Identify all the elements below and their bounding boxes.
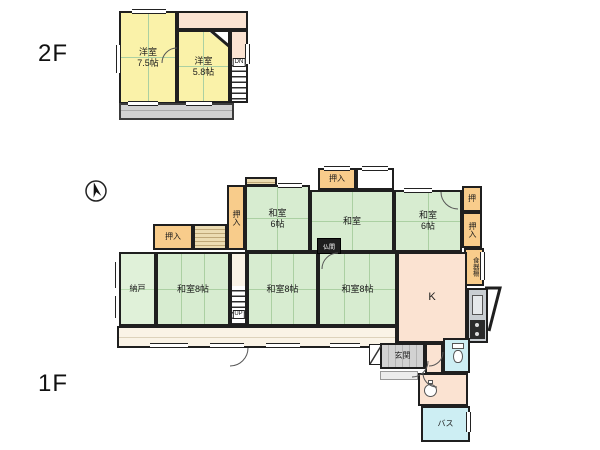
- kitchen-counter: [467, 288, 488, 343]
- f1-closet-right-vertical: 押入: [462, 212, 482, 248]
- window-mark: [266, 343, 300, 348]
- window-mark: [466, 412, 471, 432]
- f1-room-washitsu-8-c: 和室8帖: [318, 252, 397, 326]
- kitchen-stove: [470, 320, 485, 339]
- window-mark: [128, 101, 158, 106]
- f1-room-kitchen: K: [397, 252, 467, 343]
- room-name: 洋室: [137, 47, 159, 58]
- room-size: 6帖: [419, 221, 437, 232]
- kitchen-sink: [472, 295, 483, 315]
- shoe-cabinet: [369, 344, 381, 365]
- f1-room-washitsu-8-b: 和室8帖: [247, 252, 318, 326]
- room-name: 和室8帖: [266, 284, 298, 295]
- closet-label: 押入: [468, 222, 476, 238]
- room-size: 6帖: [268, 219, 286, 230]
- f1-closet-top-mid: 押入: [318, 168, 356, 190]
- window-mark: [210, 343, 244, 348]
- cabinet-label: 食器棚: [471, 257, 478, 277]
- window-mark: [362, 166, 388, 171]
- f1-shelf-hatch: [193, 224, 227, 250]
- window-mark: [324, 166, 350, 171]
- window-mark: [404, 188, 432, 193]
- closet-label: 押入: [232, 210, 240, 226]
- floor-plan-canvas: 2F 1F 洋室7.5帖 洋室5.8帖 DN 押入 押入 和室6帖 押入 和室: [0, 0, 600, 450]
- f1-toilet-room: [443, 338, 470, 373]
- f2-stairs-down: DN: [230, 30, 248, 103]
- room-size: 5.8帖: [193, 67, 215, 78]
- room-name: 和室8帖: [341, 284, 373, 295]
- f1-closet-oshi: 押: [462, 186, 482, 212]
- f1-room-nando: 納戸: [119, 252, 156, 326]
- washbasin-icon: [424, 384, 437, 397]
- toilet-tank-icon: [452, 343, 464, 349]
- closet-label: 押入: [329, 174, 345, 184]
- room-name: 玄関: [395, 351, 411, 361]
- f1-washroom: [418, 373, 468, 406]
- f1-closet-left-vertical: 押入: [227, 185, 245, 250]
- compass-icon: [84, 179, 108, 203]
- window-mark: [132, 9, 166, 14]
- f1-hall-patch: [425, 343, 443, 374]
- f1-bathroom: バス: [421, 406, 470, 442]
- room-name: 納戸: [130, 284, 146, 294]
- room-name: バス: [438, 419, 454, 429]
- entry-step: [380, 371, 418, 380]
- window-mark: [330, 343, 360, 348]
- room-name: 和室: [343, 216, 361, 227]
- door-arc: [230, 348, 248, 366]
- window-mark: [186, 101, 212, 106]
- alcove-label: 仏間: [323, 242, 335, 251]
- f1-butsuma-alcove: 仏間: [317, 238, 341, 254]
- stairs-up-label: UP: [232, 310, 244, 319]
- window-mark: [150, 343, 188, 348]
- burner-icon: [475, 332, 479, 336]
- closet-label: 押入: [165, 232, 181, 242]
- faucet-icon: [428, 380, 433, 384]
- room-name: 和室: [419, 210, 437, 221]
- window-mark: [116, 45, 121, 73]
- f1-open-bay: [356, 168, 394, 190]
- window-mark: [115, 296, 120, 318]
- closet-label: 押: [468, 194, 476, 204]
- room-name: 和室8帖: [177, 284, 209, 295]
- f1-genkan: 玄関: [380, 343, 425, 369]
- toilet-bowl-icon: [453, 350, 463, 363]
- f2-room-western-7-5: 洋室7.5帖: [119, 11, 177, 104]
- room-name: 洋室: [193, 56, 215, 67]
- f1-room-washitsu-6-left: 和室6帖: [245, 185, 310, 252]
- f1-room-washitsu-6-right: 和室6帖: [394, 190, 462, 252]
- burner-icon: [475, 323, 479, 327]
- stair-treads: [232, 61, 246, 101]
- stairs-down-label: DN: [233, 58, 246, 67]
- f1-stairs-up: UP: [230, 252, 247, 326]
- room-name: 和室: [268, 208, 286, 219]
- floor-1-label: 1F: [38, 370, 68, 398]
- floor-2-label: 2F: [38, 40, 68, 68]
- f2-hall-strip: [177, 11, 248, 30]
- window-mark: [480, 252, 485, 280]
- room-name: K: [428, 291, 435, 304]
- window-mark: [115, 262, 120, 288]
- room-size: 7.5帖: [137, 58, 159, 69]
- window-mark: [245, 44, 250, 64]
- window-mark: [278, 183, 302, 188]
- f1-room-washitsu-8-a: 和室8帖: [156, 252, 230, 326]
- f1-closet-top-left: 押入: [153, 224, 193, 250]
